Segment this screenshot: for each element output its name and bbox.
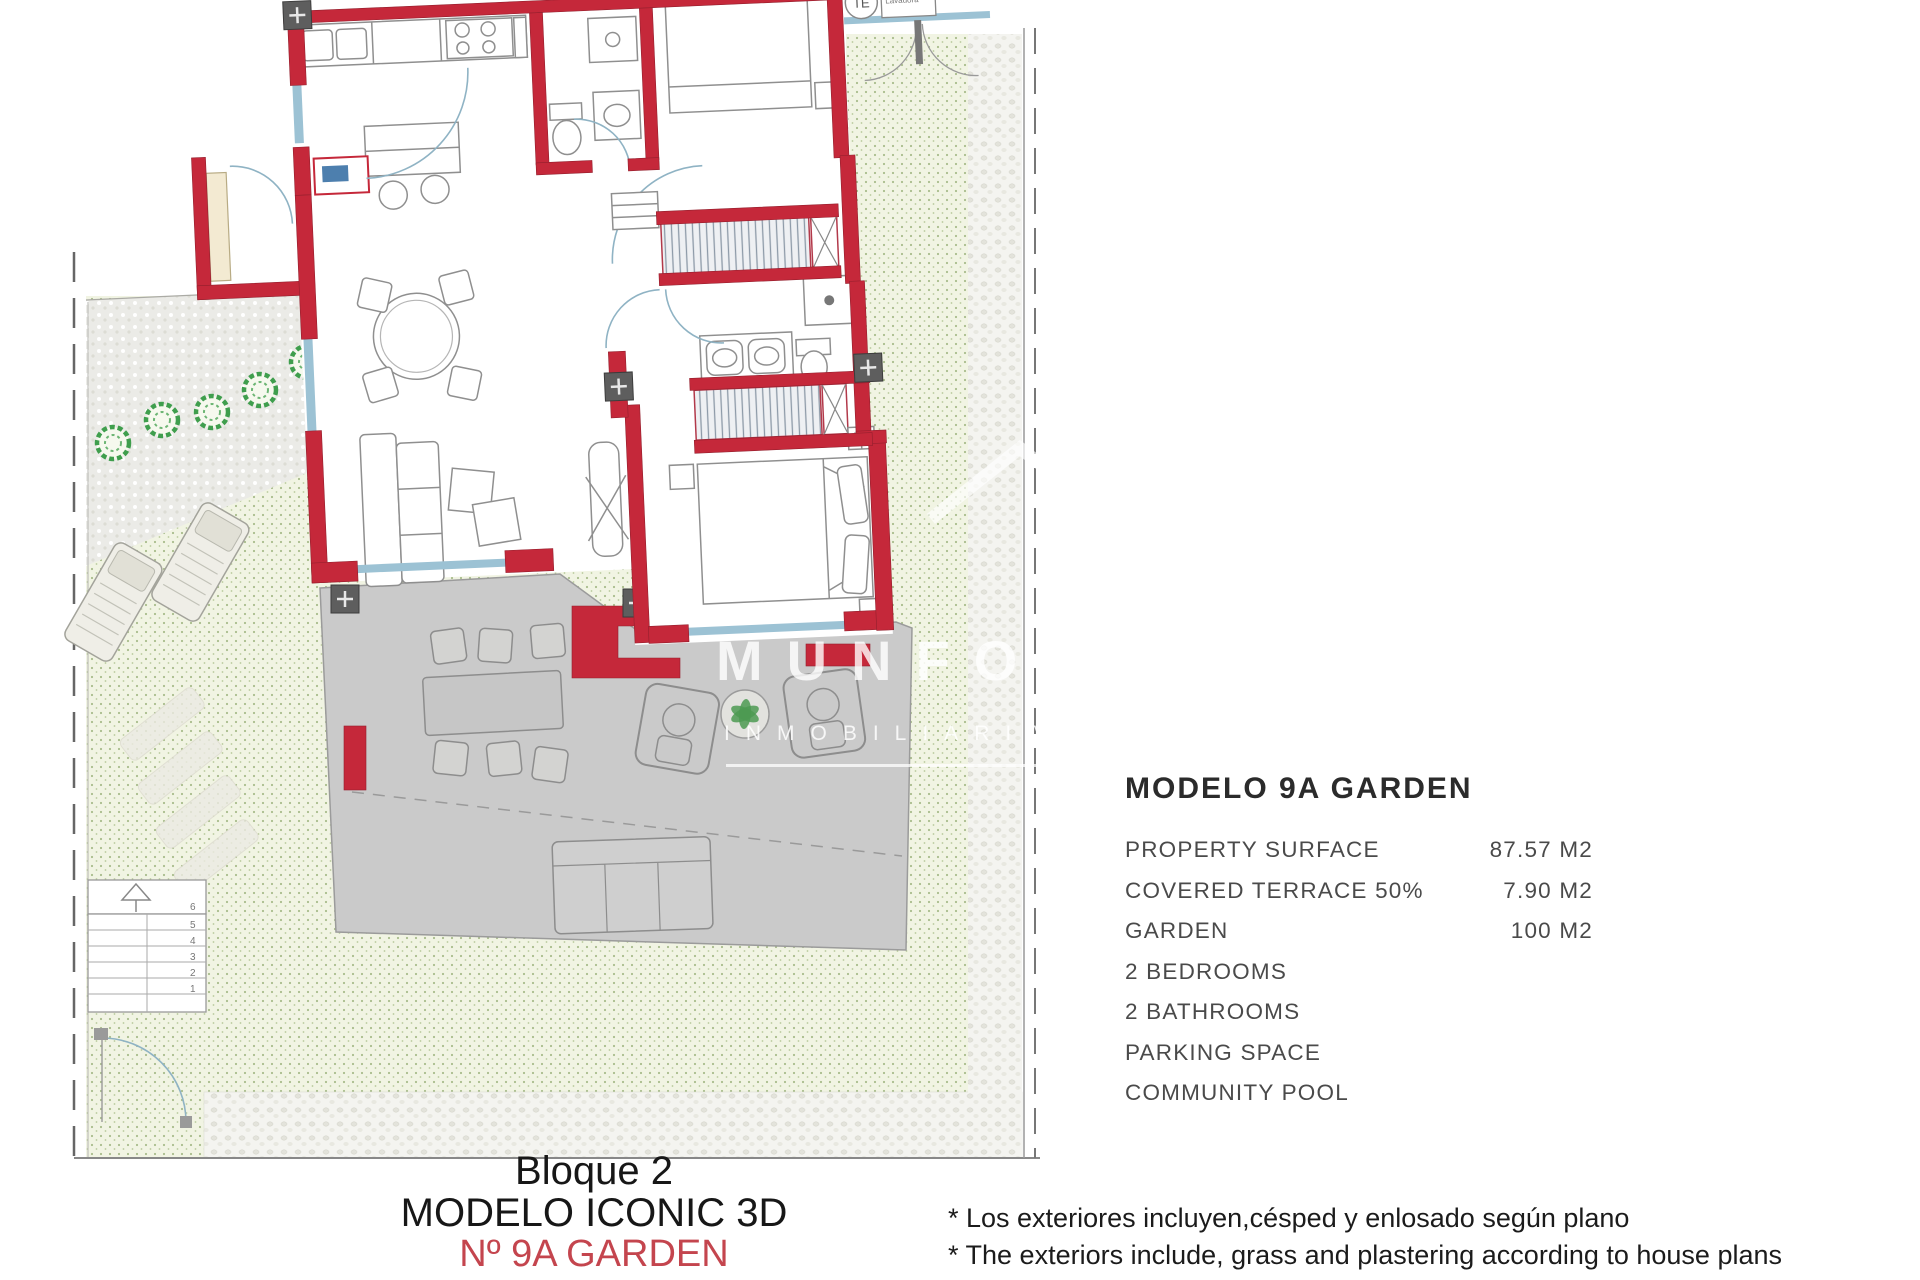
spec-row: PARKING SPACE [1125, 1033, 1593, 1074]
column-marker [604, 372, 633, 401]
floor-plan-sheet: 6 5 4 3 2 1 [0, 0, 1920, 1280]
stair-number: 3 [190, 952, 196, 963]
stair-number: 4 [190, 936, 196, 947]
stair-flight-a [661, 216, 839, 276]
outdoor-chair [486, 741, 522, 777]
spec-label: GARDEN [1125, 918, 1228, 944]
outdoor-chair [478, 628, 513, 663]
outdoor-chair [433, 740, 469, 776]
spec-row: 2 BEDROOMS [1125, 952, 1593, 993]
plan-caption: Bloque 2 MODELO ICONIC 3D Nº 9A GARDEN [344, 1150, 844, 1274]
te-label: TE [853, 0, 871, 11]
stair-number: 5 [190, 920, 196, 931]
caption-block: Bloque 2 [344, 1150, 844, 1192]
spec-value: 7.90 M2 [1503, 878, 1593, 904]
bush [146, 404, 178, 436]
spec-row: 2 BATHROOMS [1125, 992, 1593, 1033]
spec-label: 2 BEDROOMS [1125, 959, 1287, 985]
footnotes: * Los exteriores incluyen,césped y enlos… [948, 1200, 1782, 1274]
bush [97, 427, 129, 459]
floor-plan-drawing: 6 5 4 3 2 1 [0, 0, 1080, 1280]
spec-row: COVERED TERRACE 50% 7.90 M2 [1125, 871, 1593, 912]
outdoor-chair [531, 746, 568, 783]
outdoor-table [423, 670, 564, 735]
potted-plant [721, 690, 769, 738]
spec-label: COVERED TERRACE 50% [1125, 878, 1424, 904]
dining-chair [438, 269, 475, 306]
spec-label: PROPERTY SURFACE [1125, 837, 1380, 863]
spec-label: 2 BATHROOMS [1125, 999, 1300, 1025]
caption-unit: Nº 9A GARDEN [344, 1234, 844, 1274]
column-marker [331, 585, 359, 613]
outdoor-chair [530, 623, 566, 659]
footnote-es: * Los exteriores incluyen,césped y enlos… [948, 1200, 1782, 1237]
bush [196, 396, 228, 428]
column-marker [854, 353, 883, 382]
caption-model: MODELO ICONIC 3D [344, 1192, 844, 1234]
details-panel: MODELO 9A GARDEN PROPERTY SURFACE 87.57 … [1125, 772, 1593, 1114]
stair-number: 6 [190, 902, 196, 913]
outdoor-chair [430, 627, 467, 664]
model-title: MODELO 9A GARDEN [1125, 772, 1593, 806]
stair-number: 2 [190, 968, 196, 979]
spec-row: GARDEN 100 M2 [1125, 911, 1593, 952]
footnote-en: * The exteriors include, grass and plast… [948, 1237, 1782, 1274]
spec-label: PARKING SPACE [1125, 1040, 1321, 1066]
spec-value: 100 M2 [1511, 918, 1593, 944]
bush [244, 374, 276, 406]
dining-chair [447, 366, 482, 401]
column-marker [283, 1, 312, 30]
spec-row: PROPERTY SURFACE 87.57 M2 [1125, 830, 1593, 871]
stair-number: 1 [190, 984, 196, 995]
outdoor-sofa [552, 836, 713, 933]
spec-value: 87.57 M2 [1490, 837, 1593, 863]
gravel-strip-right [968, 34, 1022, 1158]
dining-chair [357, 277, 393, 313]
spec-row: COMMUNITY POOL [1125, 1073, 1593, 1114]
spec-label: COMMUNITY POOL [1125, 1080, 1349, 1106]
stair-flight-b [694, 384, 848, 441]
